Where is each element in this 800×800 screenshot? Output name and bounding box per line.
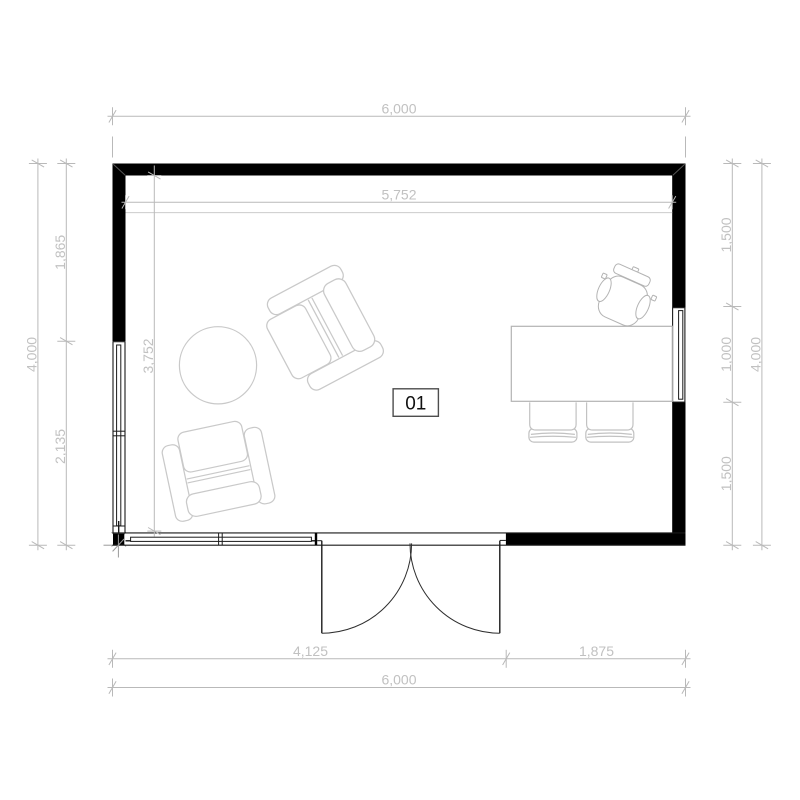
svg-text:1,865: 1,865 bbox=[52, 235, 68, 270]
svg-text:01: 01 bbox=[405, 393, 426, 414]
svg-text:6,000: 6,000 bbox=[381, 101, 416, 117]
svg-text:1,500: 1,500 bbox=[718, 456, 734, 491]
svg-text:1,875: 1,875 bbox=[579, 643, 614, 659]
svg-text:3,752: 3,752 bbox=[140, 338, 156, 373]
svg-text:4,125: 4,125 bbox=[293, 643, 328, 659]
svg-text:1,000: 1,000 bbox=[718, 337, 734, 372]
svg-text:4,000: 4,000 bbox=[24, 337, 40, 372]
svg-text:1,500: 1,500 bbox=[718, 217, 734, 252]
svg-text:6,000: 6,000 bbox=[381, 672, 416, 688]
svg-text:5,752: 5,752 bbox=[381, 187, 416, 203]
svg-text:4,000: 4,000 bbox=[748, 337, 764, 372]
svg-text:2,135: 2,135 bbox=[52, 429, 68, 464]
